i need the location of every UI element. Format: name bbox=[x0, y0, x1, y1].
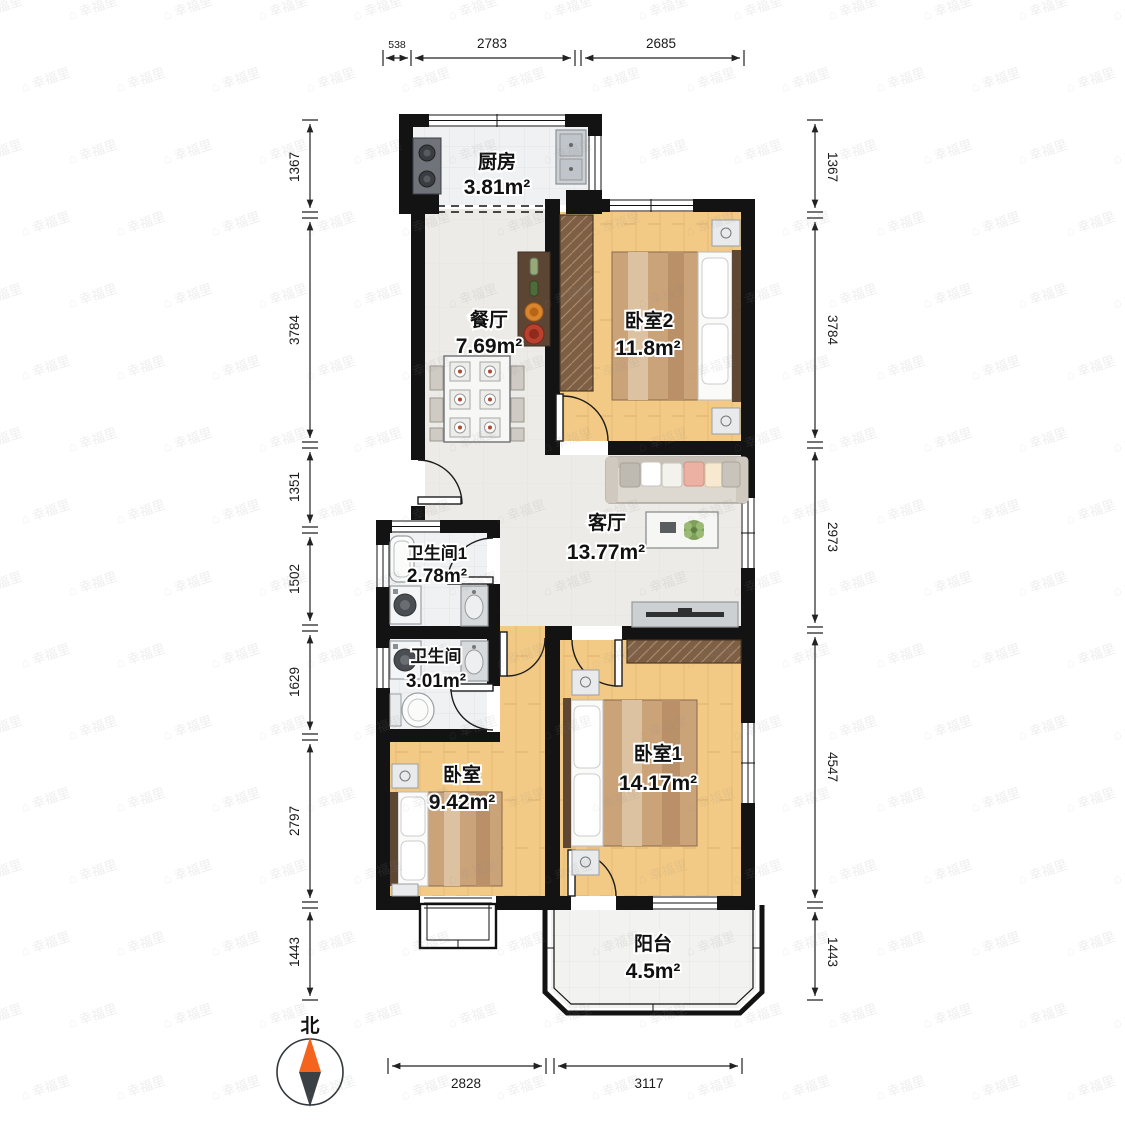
living-area: 13.77m² bbox=[567, 541, 645, 564]
dining-name: 餐厅 bbox=[470, 308, 508, 331]
watermark-text: ⌂ 幸福里 bbox=[19, 353, 72, 383]
watermark-text: ⌂ 幸福里 bbox=[446, 1001, 499, 1031]
watermark-text: ⌂ 幸福里 bbox=[779, 65, 832, 95]
watermark-text: ⌂ 幸福里 bbox=[161, 713, 214, 743]
compass-north-needle bbox=[299, 1037, 321, 1072]
watermark-text: ⌂ 幸福里 bbox=[209, 1073, 262, 1103]
dim-label: 1443 bbox=[287, 937, 302, 967]
watermark-text: ⌂ 幸福里 bbox=[826, 1001, 879, 1031]
watermark-text: ⌂ 幸福里 bbox=[969, 209, 1022, 239]
living-right-window bbox=[741, 498, 755, 568]
watermark-text: ⌂ 幸福里 bbox=[114, 1073, 167, 1103]
watermark-text: ⌂ 幸福里 bbox=[1111, 569, 1125, 599]
dimension-top: 538 2783 2685 bbox=[383, 36, 744, 66]
watermark-text: ⌂ 幸福里 bbox=[684, 1073, 737, 1103]
sofa bbox=[606, 457, 748, 503]
watermark-text: ⌂ 幸福里 bbox=[826, 713, 879, 743]
watermark-text: ⌂ 幸福里 bbox=[0, 425, 24, 455]
watermark-text: ⌂ 幸福里 bbox=[874, 1073, 927, 1103]
watermark-text: ⌂ 幸福里 bbox=[874, 641, 927, 671]
watermark-text: ⌂ 幸福里 bbox=[921, 569, 974, 599]
dim-label: 2797 bbox=[287, 806, 302, 836]
watermark-text: ⌂ 幸福里 bbox=[921, 137, 974, 167]
watermark-text: ⌂ 幸福里 bbox=[731, 137, 784, 167]
watermark-text: ⌂ 幸福里 bbox=[1064, 785, 1117, 815]
watermark-text: ⌂ 幸福里 bbox=[731, 0, 784, 23]
kitchen-top-window bbox=[429, 114, 565, 127]
watermark-text: ⌂ 幸福里 bbox=[1111, 713, 1125, 743]
watermark-text: ⌂ 幸福里 bbox=[969, 929, 1022, 959]
watermark-text: ⌂ 幸福里 bbox=[494, 929, 547, 959]
watermark-text: ⌂ 幸福里 bbox=[66, 281, 119, 311]
watermark-text: ⌂ 幸福里 bbox=[114, 929, 167, 959]
watermark-text: ⌂ 幸福里 bbox=[779, 929, 832, 959]
bedroom-small-name: 卧室 bbox=[443, 763, 481, 786]
dimension-right: 1367 3784 2973 4547 1443 bbox=[807, 120, 840, 1000]
watermark-text: ⌂ 幸福里 bbox=[0, 137, 24, 167]
watermark-text: ⌂ 幸福里 bbox=[1016, 0, 1069, 23]
watermark-text: ⌂ 幸福里 bbox=[1111, 137, 1125, 167]
watermark-text: ⌂ 幸福里 bbox=[779, 641, 832, 671]
watermark-text: ⌂ 幸福里 bbox=[1111, 0, 1125, 23]
watermark-text: ⌂ 幸福里 bbox=[19, 65, 72, 95]
watermark-text: ⌂ 幸福里 bbox=[874, 209, 927, 239]
watermark-text: ⌂ 幸福里 bbox=[209, 353, 262, 383]
watermark-text: ⌂ 幸福里 bbox=[304, 209, 357, 239]
watermark-text: ⌂ 幸福里 bbox=[1111, 1001, 1125, 1031]
bedroom1-name: 卧室1 bbox=[634, 742, 683, 765]
watermark-text: ⌂ 幸福里 bbox=[256, 857, 309, 887]
watermark-text: ⌂ 幸福里 bbox=[826, 137, 879, 167]
watermark-text: ⌂ 幸福里 bbox=[874, 497, 927, 527]
watermark-text: ⌂ 幸福里 bbox=[19, 497, 72, 527]
watermark-text: ⌂ 幸福里 bbox=[66, 425, 119, 455]
watermark-text: ⌂ 幸福里 bbox=[1016, 425, 1069, 455]
watermark-text: ⌂ 幸福里 bbox=[161, 1001, 214, 1031]
watermark-text: ⌂ 幸福里 bbox=[1064, 497, 1117, 527]
watermark-text: ⌂ 幸福里 bbox=[1111, 857, 1125, 887]
watermark-text: ⌂ 幸福里 bbox=[779, 353, 832, 383]
watermark-text: ⌂ 幸福里 bbox=[209, 929, 262, 959]
watermark-text: ⌂ 幸福里 bbox=[969, 353, 1022, 383]
watermark-text: ⌂ 幸福里 bbox=[209, 497, 262, 527]
watermark-text: ⌂ 幸福里 bbox=[161, 857, 214, 887]
watermark-text: ⌂ 幸福里 bbox=[256, 425, 309, 455]
watermark-text: ⌂ 幸福里 bbox=[19, 641, 72, 671]
watermark-text: ⌂ 幸福里 bbox=[1016, 1001, 1069, 1031]
watermark-text: ⌂ 幸福里 bbox=[969, 1073, 1022, 1103]
watermark-text: ⌂ 幸福里 bbox=[209, 785, 262, 815]
watermark-text: ⌂ 幸福里 bbox=[0, 713, 24, 743]
dining-area: 7.69m² bbox=[456, 335, 523, 358]
dim-label: 4547 bbox=[825, 752, 840, 782]
compass-north-label: 北 bbox=[300, 1015, 319, 1037]
watermark-text: ⌂ 幸福里 bbox=[19, 785, 72, 815]
watermark-text: ⌂ 幸福里 bbox=[19, 209, 72, 239]
watermark-text: ⌂ 幸福里 bbox=[636, 0, 689, 23]
watermark-text: ⌂ 幸福里 bbox=[826, 857, 879, 887]
watermark-text: ⌂ 幸福里 bbox=[351, 1001, 404, 1031]
watermark-text: ⌂ 幸福里 bbox=[19, 1073, 72, 1103]
balcony-area: 4.5m² bbox=[626, 960, 681, 983]
watermark-text: ⌂ 幸福里 bbox=[114, 497, 167, 527]
watermark-text: ⌂ 幸福里 bbox=[636, 137, 689, 167]
bathroom-area: 3.01m² bbox=[406, 671, 466, 692]
watermark-text: ⌂ 幸福里 bbox=[874, 65, 927, 95]
watermark-text: ⌂ 幸福里 bbox=[351, 281, 404, 311]
watermark-text: ⌂ 幸福里 bbox=[209, 209, 262, 239]
watermark-text: ⌂ 幸福里 bbox=[826, 281, 879, 311]
dim-label: 1629 bbox=[287, 667, 302, 697]
watermark-text: ⌂ 幸福里 bbox=[19, 929, 72, 959]
watermark-text: ⌂ 幸福里 bbox=[304, 785, 357, 815]
watermark-text: ⌂ 幸福里 bbox=[304, 929, 357, 959]
watermark-text: ⌂ 幸福里 bbox=[0, 1001, 24, 1031]
watermark-text: ⌂ 幸福里 bbox=[921, 713, 974, 743]
balcony-wall-window bbox=[653, 896, 717, 910]
watermark-text: ⌂ 幸福里 bbox=[921, 857, 974, 887]
watermark-text: ⌂ 幸福里 bbox=[779, 497, 832, 527]
watermark-text: ⌂ 幸福里 bbox=[66, 857, 119, 887]
watermark-text: ⌂ 幸福里 bbox=[779, 1073, 832, 1103]
tv-stand bbox=[632, 602, 738, 627]
watermark-text: ⌂ 幸福里 bbox=[209, 65, 262, 95]
watermark-text: ⌂ 幸福里 bbox=[684, 65, 737, 95]
watermark-text: ⌂ 幸福里 bbox=[921, 1001, 974, 1031]
dim-label: 2685 bbox=[646, 36, 676, 51]
dim-label: 3784 bbox=[287, 314, 302, 345]
watermark-text: ⌂ 幸福里 bbox=[826, 569, 879, 599]
bedroom2-top-window bbox=[610, 199, 693, 212]
watermark-text: ⌂ 幸福里 bbox=[66, 0, 119, 23]
watermark-text: ⌂ 幸福里 bbox=[161, 281, 214, 311]
balcony-floor bbox=[551, 910, 756, 1008]
watermark-text: ⌂ 幸福里 bbox=[351, 137, 404, 167]
watermark-text: ⌂ 幸福里 bbox=[304, 353, 357, 383]
dim-label: 538 bbox=[388, 39, 406, 51]
watermark-text: ⌂ 幸福里 bbox=[399, 65, 452, 95]
watermark-text: ⌂ 幸福里 bbox=[921, 0, 974, 23]
watermark-text: ⌂ 幸福里 bbox=[969, 785, 1022, 815]
watermark-text: ⌂ 幸福里 bbox=[874, 785, 927, 815]
watermark-text: ⌂ 幸福里 bbox=[1064, 641, 1117, 671]
dim-label: 2783 bbox=[477, 36, 507, 51]
watermark-text: ⌂ 幸福里 bbox=[0, 857, 24, 887]
dim-label: 2973 bbox=[825, 522, 840, 552]
watermark-text: ⌂ 幸福里 bbox=[589, 1073, 642, 1103]
watermark-text: ⌂ 幸福里 bbox=[446, 0, 499, 23]
watermark-text: ⌂ 幸福里 bbox=[351, 425, 404, 455]
watermark-text: ⌂ 幸福里 bbox=[209, 641, 262, 671]
dim-label: 1351 bbox=[287, 472, 302, 502]
watermark-text: ⌂ 幸福里 bbox=[921, 425, 974, 455]
washing-machine bbox=[390, 586, 421, 624]
dim-label: 3784 bbox=[825, 315, 840, 346]
watermark-text: ⌂ 幸福里 bbox=[351, 0, 404, 23]
watermark-text: ⌂ 幸福里 bbox=[0, 0, 24, 23]
watermark-text: ⌂ 幸福里 bbox=[66, 1001, 119, 1031]
watermark-text: ⌂ 幸福里 bbox=[0, 569, 24, 599]
watermark-text: ⌂ 幸福里 bbox=[1016, 569, 1069, 599]
watermark-text: ⌂ 幸福里 bbox=[541, 0, 594, 23]
watermark-text: ⌂ 幸福里 bbox=[256, 281, 309, 311]
watermark-text: ⌂ 幸福里 bbox=[826, 0, 879, 23]
watermark-text: ⌂ 幸福里 bbox=[494, 1073, 547, 1103]
watermark-text: ⌂ 幸福里 bbox=[779, 785, 832, 815]
watermark-text: ⌂ 幸福里 bbox=[256, 0, 309, 23]
watermark-text: ⌂ 幸福里 bbox=[114, 785, 167, 815]
watermark-text: ⌂ 幸福里 bbox=[161, 569, 214, 599]
watermark-text: ⌂ 幸福里 bbox=[969, 497, 1022, 527]
watermark-text: ⌂ 幸福里 bbox=[114, 65, 167, 95]
watermark-text: ⌂ 幸福里 bbox=[399, 1073, 452, 1103]
watermark-text: ⌂ 幸福里 bbox=[1064, 929, 1117, 959]
watermark-text: ⌂ 幸福里 bbox=[304, 641, 357, 671]
watermark-text: ⌂ 幸福里 bbox=[874, 929, 927, 959]
watermark-text: ⌂ 幸福里 bbox=[1111, 425, 1125, 455]
watermark-text: ⌂ 幸福里 bbox=[1111, 281, 1125, 311]
watermark-text: ⌂ 幸福里 bbox=[114, 209, 167, 239]
floorplan-svg: 厨房 3.81m² 餐厅 7.69m² 卧室2 11.8m² 客厅 13.77m… bbox=[0, 0, 1125, 1125]
watermark-text: ⌂ 幸福里 bbox=[304, 65, 357, 95]
watermark-text: ⌂ 幸福里 bbox=[1064, 1073, 1117, 1103]
watermark-text: ⌂ 幸福里 bbox=[66, 137, 119, 167]
dim-label: 2828 bbox=[451, 1076, 481, 1091]
stove bbox=[413, 138, 441, 194]
watermark-text: ⌂ 幸福里 bbox=[66, 713, 119, 743]
kitchen-area: 3.81m² bbox=[464, 176, 531, 199]
watermark-text: ⌂ 幸福里 bbox=[969, 641, 1022, 671]
bedroom2-name: 卧室2 bbox=[625, 309, 674, 332]
watermark-text: ⌂ 幸福里 bbox=[921, 281, 974, 311]
watermark-text: ⌂ 幸福里 bbox=[114, 353, 167, 383]
watermark-text: ⌂ 幸福里 bbox=[114, 641, 167, 671]
watermark-text: ⌂ 幸福里 bbox=[1016, 713, 1069, 743]
watermark-text: ⌂ 幸福里 bbox=[0, 281, 24, 311]
hall-strip-floor bbox=[500, 520, 545, 626]
watermark-text: ⌂ 幸福里 bbox=[161, 137, 214, 167]
bathroom1-name: 卫生间1 bbox=[407, 543, 467, 563]
watermark-text: ⌂ 幸福里 bbox=[256, 713, 309, 743]
watermark-text: ⌂ 幸福里 bbox=[826, 425, 879, 455]
watermark-text: ⌂ 幸福里 bbox=[494, 65, 547, 95]
watermark-text: ⌂ 幸福里 bbox=[1064, 209, 1117, 239]
watermark-text: ⌂ 幸福里 bbox=[969, 65, 1022, 95]
watermark-text: ⌂ 幸福里 bbox=[161, 0, 214, 23]
watermark-text: ⌂ 幸福里 bbox=[304, 497, 357, 527]
watermark-text: ⌂ 幸福里 bbox=[161, 425, 214, 455]
watermark-text: ⌂ 幸福里 bbox=[1016, 137, 1069, 167]
watermark-text: ⌂ 幸福里 bbox=[779, 209, 832, 239]
floorplan-canvas: 厨房 3.81m² 餐厅 7.69m² 卧室2 11.8m² 客厅 13.77m… bbox=[0, 0, 1125, 1125]
watermark-text: ⌂ 幸福里 bbox=[1016, 857, 1069, 887]
watermark-text: ⌂ 幸福里 bbox=[1016, 281, 1069, 311]
bathroom-left-window bbox=[376, 648, 390, 688]
watermark-text: ⌂ 幸福里 bbox=[1064, 353, 1117, 383]
watermark-text: ⌂ 幸福里 bbox=[66, 569, 119, 599]
watermark-text: ⌂ 幸福里 bbox=[589, 65, 642, 95]
watermark-text: ⌂ 幸福里 bbox=[1064, 65, 1117, 95]
watermark-text: ⌂ 幸福里 bbox=[874, 353, 927, 383]
